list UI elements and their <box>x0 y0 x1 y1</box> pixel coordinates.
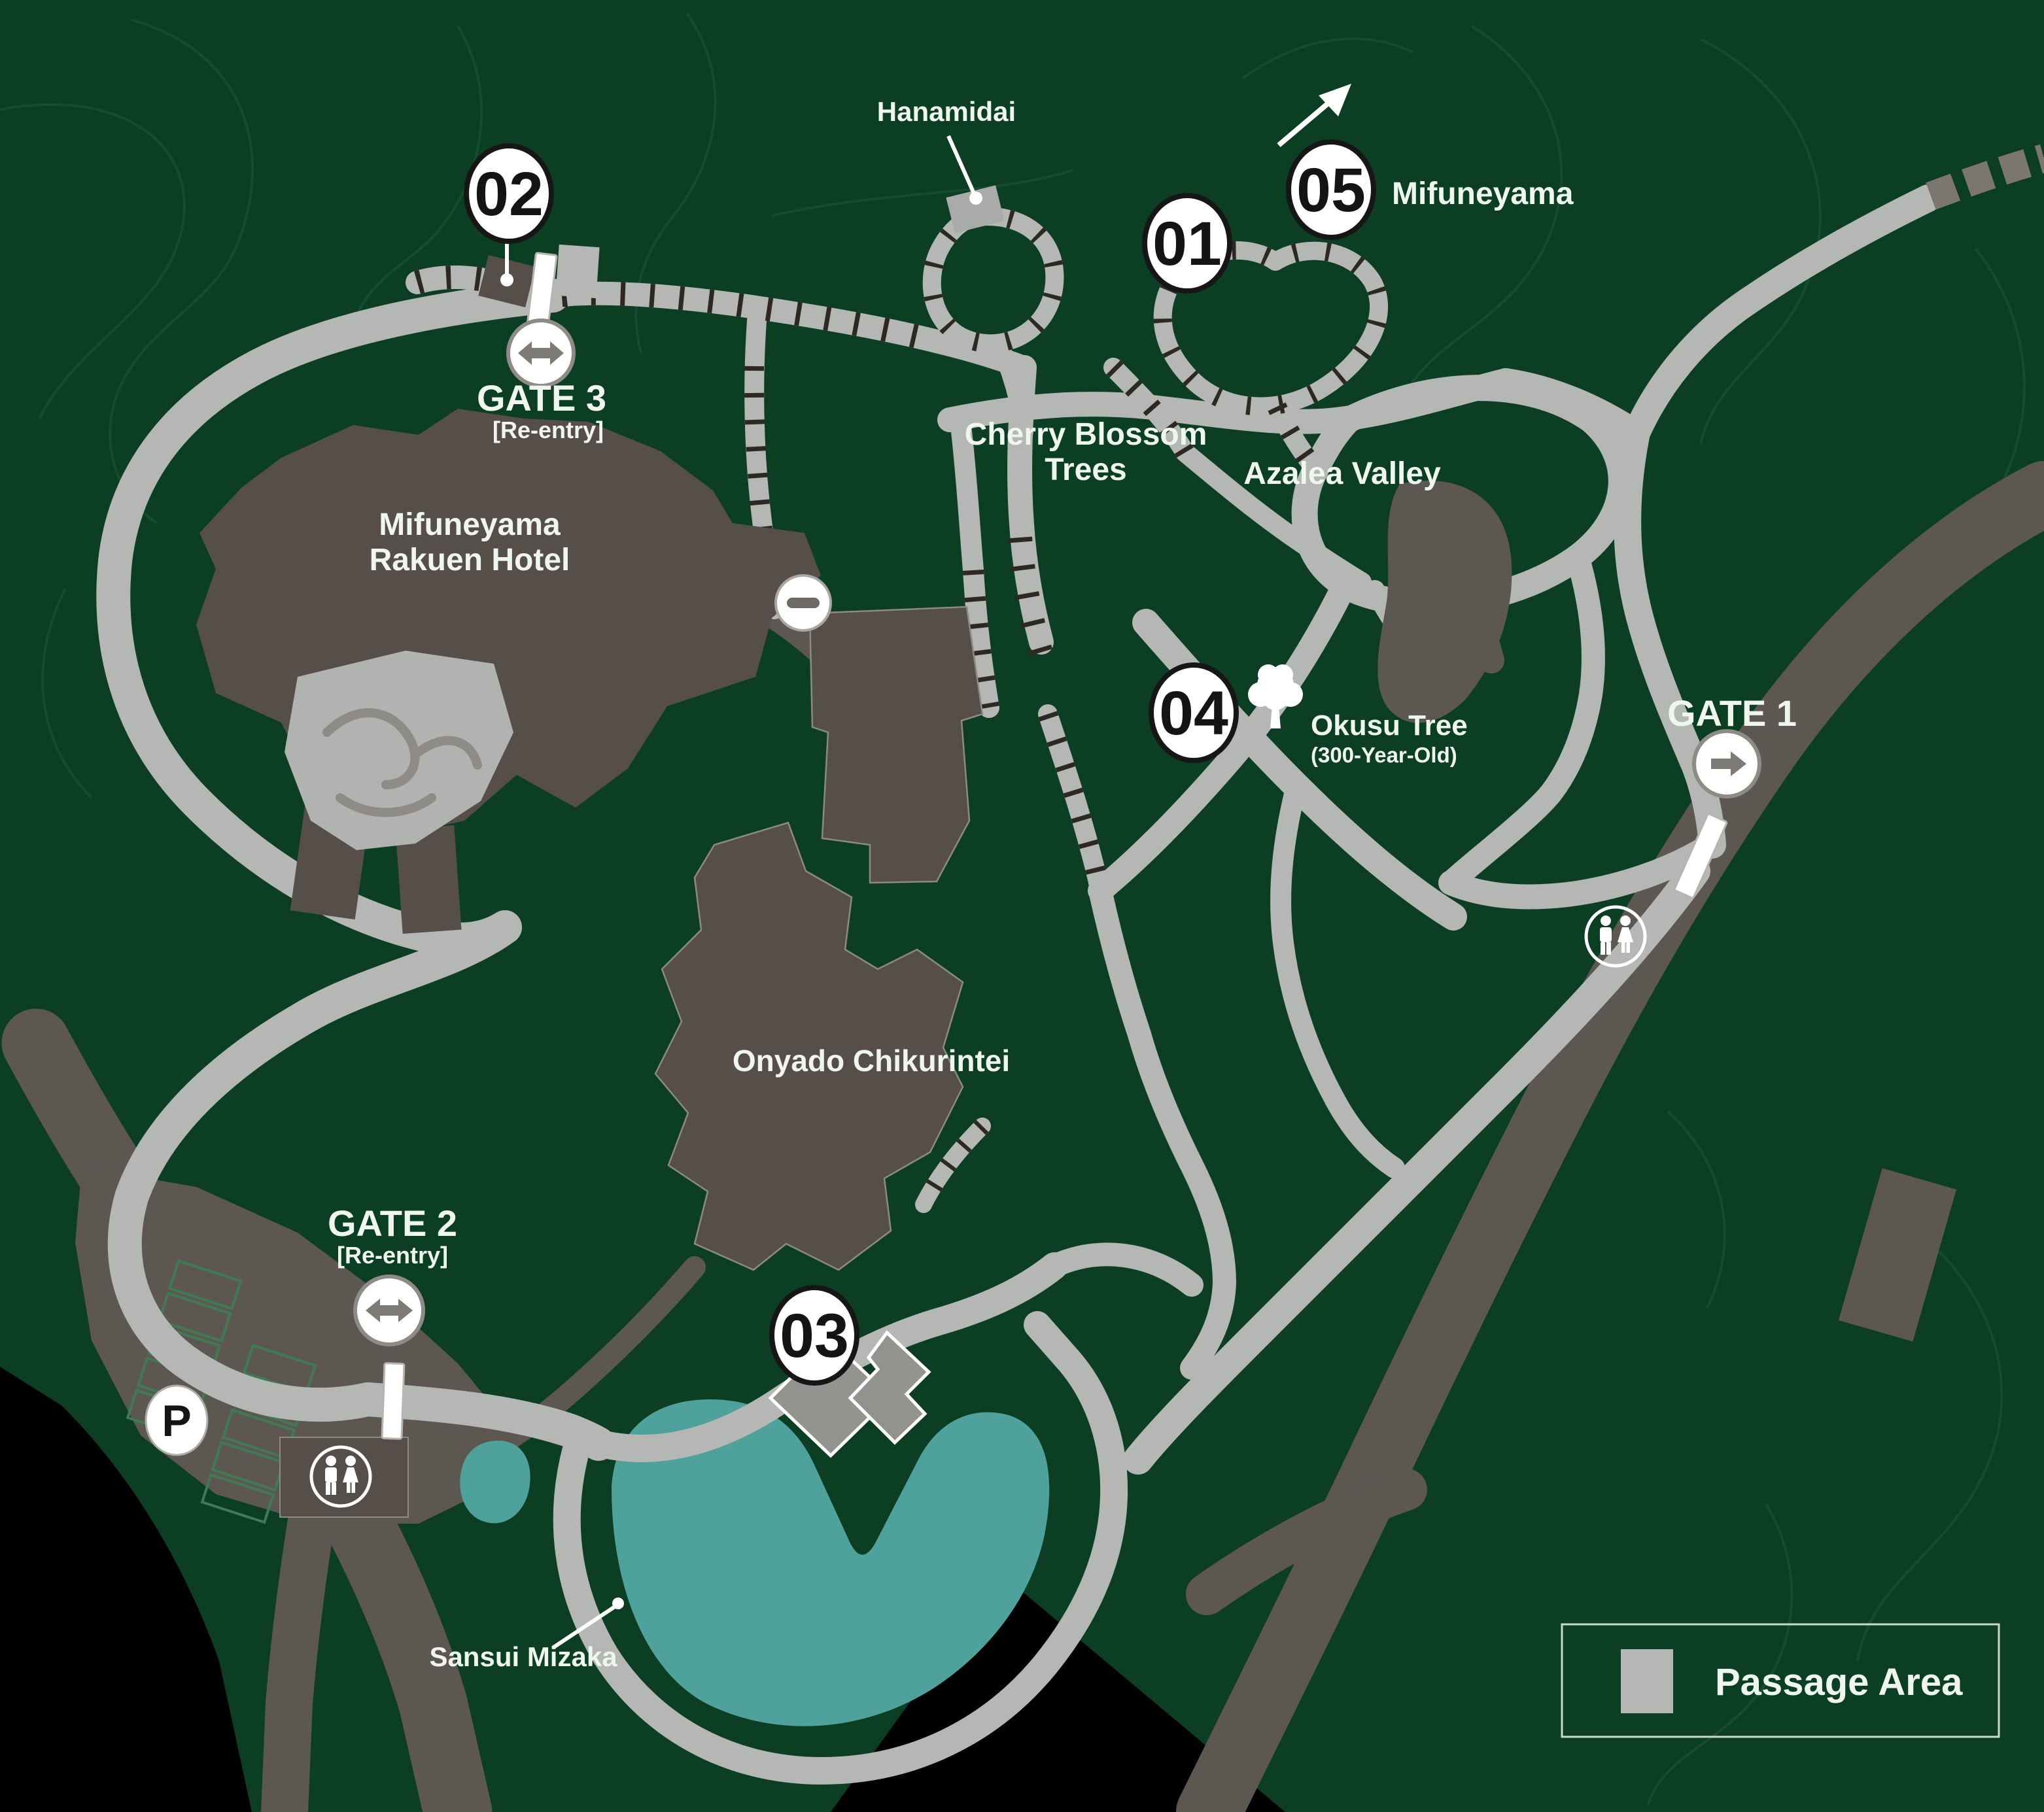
marker-03: 03 <box>772 1288 857 1383</box>
marker-04-number: 04 <box>1159 679 1228 748</box>
label-gate3-reentry: [Re-entry] <box>493 417 604 443</box>
marker-01-number: 01 <box>1152 209 1222 279</box>
label-gate3: GATE 3 <box>477 377 606 419</box>
legend-passage-label: Passage Area <box>1715 1661 1963 1703</box>
marker02-pointer-dot <box>500 273 513 286</box>
parking-icon: P <box>146 1386 207 1455</box>
label-mifuneyama-summit: Mifuneyama <box>1392 177 1574 211</box>
label-okusu-tree-age: (300-Year-Old) <box>1311 743 1457 767</box>
label-gate2-reentry: [Re-entry] <box>337 1242 448 1269</box>
gate3-platform <box>555 245 599 298</box>
label-gate2: GATE 2 <box>328 1203 457 1244</box>
gate1-right-arrow-icon <box>1694 731 1759 796</box>
gate2-two-way-arrow-icon <box>355 1276 423 1344</box>
label-gate1: GATE 1 <box>1667 692 1797 734</box>
sansui-pointer-dot <box>612 1598 624 1609</box>
marker-05-number: 05 <box>1296 156 1366 225</box>
label-hotel-1: Mifuneyama <box>379 507 561 542</box>
marker-04: 04 <box>1151 665 1236 761</box>
marker-03-number: 03 <box>780 1301 849 1371</box>
label-cherry-blossom-1: Cherry Blossom <box>965 417 1207 452</box>
parking-letter: P <box>162 1396 191 1446</box>
label-hotel-2: Rakuen Hotel <box>370 543 570 577</box>
label-okusu-tree: Okusu Tree <box>1311 709 1468 742</box>
map-canvas: P 01 02 03 04 05 <box>0 0 2044 1812</box>
marker-05: 05 <box>1289 142 1374 237</box>
hanamidai-pointer-dot <box>969 192 982 205</box>
label-sansui-mizaka: Sansui Mizaka <box>429 1641 617 1672</box>
marker-02-number: 02 <box>474 160 544 229</box>
park-map: P 01 02 03 04 05 <box>0 0 2044 1812</box>
label-azalea-valley: Azalea Valley <box>1243 456 1441 491</box>
marker-02: 02 <box>466 146 551 241</box>
legend-passage-swatch <box>1621 1649 1673 1713</box>
label-onyado-chikurintei: Onyado Chikurintei <box>733 1044 1010 1078</box>
label-cherry-blossom-2: Trees <box>1045 453 1126 487</box>
gate2-bar <box>382 1363 404 1439</box>
gate3-two-way-arrow-icon <box>508 320 574 386</box>
no-entry-icon <box>776 575 831 630</box>
label-hanamidai: Hanamidai <box>877 96 1016 127</box>
marker-01: 01 <box>1145 196 1230 291</box>
